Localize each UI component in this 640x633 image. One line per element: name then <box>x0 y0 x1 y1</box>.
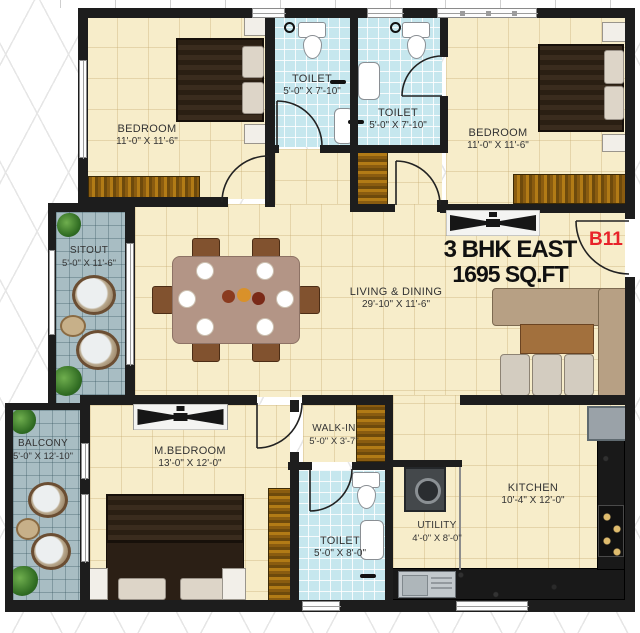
coffee-table <box>520 324 594 354</box>
room-dims: 5'-0" X 12'-10" <box>6 451 80 463</box>
wall <box>350 204 395 212</box>
window-bedroom-top-right <box>437 8 537 18</box>
sofa-cushion <box>532 354 562 396</box>
room-dims: 5'-0" X 7'-10" <box>354 120 442 133</box>
room-dims: 5'-0" X 7'-10" <box>271 86 353 99</box>
room-name: WALK-IN <box>296 423 372 436</box>
tv-unit-living <box>446 210 540 236</box>
room-dims: 11'-0" X 11'-6" <box>92 136 202 149</box>
label-kitchen: KITCHEN 10'-4" X 12'-0" <box>477 481 589 508</box>
room-name: TOILET <box>271 72 353 86</box>
pillow <box>604 50 624 84</box>
room-name: SITOUT <box>44 245 134 258</box>
plate <box>196 262 214 280</box>
sink-drainboard <box>431 587 452 589</box>
plate <box>276 290 294 308</box>
window-master-bedroom-left <box>81 443 89 479</box>
sliding-door-balcony <box>81 494 89 562</box>
utility-partition-line <box>459 467 461 570</box>
unit-number-badge: B11 <box>589 229 623 251</box>
dining-chair <box>298 286 320 314</box>
pillow <box>180 578 228 600</box>
serving-dish <box>237 288 251 302</box>
room-dims: 13'-0" X 12'-0" <box>130 458 250 471</box>
wall <box>385 395 393 605</box>
tap-icon <box>390 22 401 33</box>
label-utility: UTILITY 4'-0" X 8'-0" <box>394 520 480 545</box>
pillow <box>118 578 166 600</box>
kitchen-sink <box>398 571 456 598</box>
room-dims: 10'-4" X 12'-0" <box>477 495 589 508</box>
label-toilet-1: TOILET 5'-0" X 7'-10" <box>271 72 353 99</box>
label-toilet-2: TOILET 5'-0" X 7'-10" <box>354 106 442 133</box>
wall <box>5 403 13 612</box>
room-dims: 29'-10" X 11'-6" <box>326 299 466 312</box>
shower-icon <box>360 574 376 578</box>
round-chair <box>31 533 71 570</box>
label-sitout: SITOUT 5'-0" X 11'-6" <box>44 245 134 270</box>
round-chair <box>72 275 116 315</box>
label-bedroom-top-left: BEDROOM 11'-0" X 11'-6" <box>92 122 202 149</box>
nightstand <box>244 124 266 144</box>
nightstand <box>602 134 626 152</box>
round-table <box>60 315 86 337</box>
label-walk-in: WALK-IN 5'-0" X 3'-7" <box>296 423 372 448</box>
wall <box>625 8 635 612</box>
window-toilet-bottom <box>302 601 340 611</box>
wall <box>460 395 635 405</box>
exterior-tile-strip <box>60 0 640 8</box>
floor-plan: BEDROOM 11'-0" X 11'-6" TOILET 5'-0" X 7… <box>0 0 640 633</box>
pillow <box>242 46 264 78</box>
window-toilet-1-vent <box>252 8 285 18</box>
label-toilet-bottom: TOILET 5'-0" X 8'-0" <box>298 534 382 561</box>
plan-title-line1: 3 BHK EAST <box>432 238 588 262</box>
washing-machine-door <box>415 478 441 504</box>
room-name: TOILET <box>354 106 442 120</box>
window-toilet-2-vent <box>367 8 403 18</box>
wall <box>290 400 299 412</box>
room-name: BEDROOM <box>92 122 202 136</box>
plate <box>256 318 274 336</box>
nightstand <box>602 22 626 42</box>
plate <box>256 262 274 280</box>
sink-basin <box>402 575 428 596</box>
gas-stove <box>598 505 624 557</box>
wall <box>290 452 299 607</box>
wall <box>265 145 279 153</box>
main-door-opening <box>625 219 635 277</box>
sink-drainboard <box>431 582 452 584</box>
dining-chair <box>152 286 174 314</box>
washing-machine <box>404 467 446 512</box>
room-dims: 5'-0" X 11'-6" <box>44 258 134 270</box>
wall <box>302 395 393 405</box>
nightstand <box>222 568 246 600</box>
room-name: UTILITY <box>394 520 480 533</box>
floor-foyer <box>275 149 350 206</box>
serving-dish <box>252 292 265 305</box>
room-dims: 11'-0" X 11'-6" <box>438 140 558 153</box>
wall <box>5 403 90 410</box>
sofa-cushion <box>564 354 594 396</box>
wall <box>390 460 462 467</box>
wall <box>352 462 392 470</box>
label-bedroom-top-right: BEDROOM 11'-0" X 11'-6" <box>438 126 558 153</box>
room-dims: 4'-0" X 8'-0" <box>394 533 480 545</box>
label-living-dining: LIVING & DINING 29'-10" X 11'-6" <box>326 285 466 312</box>
round-chair <box>76 330 120 370</box>
room-name: LIVING & DINING <box>326 285 466 299</box>
wall <box>288 462 312 470</box>
room-name: M.BEDROOM <box>130 444 250 458</box>
pillow <box>242 82 264 114</box>
room-name: BALCONY <box>6 438 80 451</box>
room-dims: 5'-0" X 3'-7" <box>296 436 372 448</box>
round-chair <box>28 482 68 518</box>
sink-drainboard <box>431 577 452 579</box>
tv-unit-master-bedroom <box>133 404 228 430</box>
plate <box>196 318 214 336</box>
tap-icon <box>284 22 295 33</box>
serving-dish <box>222 290 235 303</box>
wardrobe-master-bedroom <box>268 488 292 602</box>
wall <box>48 203 135 212</box>
wall <box>350 145 358 212</box>
sofa-cushion <box>500 354 530 396</box>
fridge <box>587 406 627 441</box>
washbasin-toilet-2 <box>358 62 380 100</box>
label-balcony: BALCONY 5'-0" X 12'-10" <box>6 438 80 463</box>
room-dims: 5'-0" X 8'-0" <box>298 548 382 561</box>
wc-toilet-bottom <box>352 472 380 488</box>
window-kitchen-bottom <box>456 601 528 611</box>
wardrobe-bedroom-top-right <box>513 174 627 204</box>
plan-title-line2: 1695 SQ.FT <box>432 262 588 287</box>
wall <box>265 8 275 207</box>
room-name: BEDROOM <box>438 126 558 140</box>
plan-title: 3 BHK EAST 1695 SQ.FT <box>432 238 588 287</box>
plate <box>178 290 196 308</box>
round-table <box>16 518 40 540</box>
wardrobe-foyer <box>357 152 388 205</box>
window-bedroom-top-left <box>79 60 87 158</box>
wc-toilet-2 <box>402 22 430 38</box>
label-master-bedroom: M.BEDROOM 13'-0" X 12'-0" <box>130 444 250 471</box>
wc-toilet-1 <box>298 22 326 38</box>
pillow <box>604 86 624 120</box>
room-name: KITCHEN <box>477 481 589 495</box>
room-name: TOILET <box>298 534 382 548</box>
master-bed-blanket <box>106 494 244 542</box>
wall <box>320 145 448 153</box>
